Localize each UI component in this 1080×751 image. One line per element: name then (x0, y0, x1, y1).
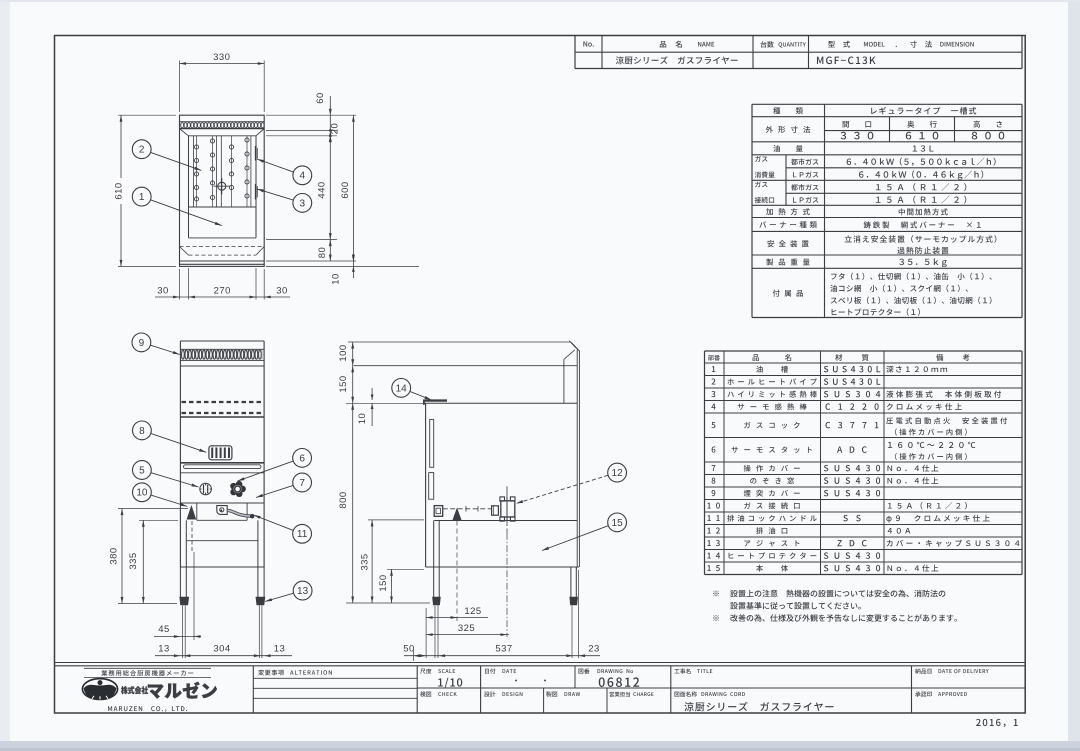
svg-text:335: 335 (128, 552, 139, 569)
svg-text:60: 60 (315, 92, 326, 104)
svg-text:325: 325 (458, 623, 475, 634)
svg-text:380: 380 (108, 547, 119, 564)
svg-text:600: 600 (340, 181, 351, 198)
svg-text:6: 6 (299, 453, 305, 464)
svg-text:50: 50 (403, 644, 415, 655)
svg-text:10: 10 (136, 488, 148, 499)
svg-text:10: 10 (331, 273, 342, 285)
svg-text:1: 1 (139, 192, 145, 203)
svg-text:12: 12 (612, 468, 624, 479)
svg-text:15: 15 (612, 518, 624, 529)
svg-text:537: 537 (495, 644, 512, 655)
svg-text:100: 100 (338, 344, 349, 361)
svg-text:13: 13 (274, 644, 286, 655)
svg-text:10: 10 (357, 413, 368, 425)
svg-text:30: 30 (157, 286, 169, 297)
svg-text:330: 330 (213, 52, 230, 63)
svg-text:335: 335 (360, 553, 371, 570)
svg-text:9: 9 (139, 338, 145, 349)
svg-text:125: 125 (464, 606, 481, 617)
svg-text:4: 4 (300, 171, 306, 182)
svg-text:13: 13 (158, 644, 170, 655)
svg-text:610: 610 (113, 182, 124, 199)
svg-text:11: 11 (297, 529, 308, 540)
svg-text:80: 80 (317, 247, 328, 259)
svg-text:8: 8 (139, 426, 145, 437)
svg-text:14: 14 (396, 383, 408, 394)
svg-text:45: 45 (158, 624, 170, 635)
svg-text:3: 3 (300, 198, 306, 209)
svg-text:270: 270 (214, 286, 231, 297)
svg-text:5: 5 (139, 465, 145, 476)
svg-text:13: 13 (297, 586, 309, 597)
svg-text:7: 7 (299, 478, 305, 489)
svg-text:150: 150 (378, 574, 389, 591)
svg-text:304: 304 (213, 644, 230, 655)
svg-text:23: 23 (588, 644, 600, 655)
svg-text:30: 30 (276, 286, 288, 297)
svg-text:2: 2 (139, 145, 145, 156)
svg-text:440: 440 (316, 181, 327, 198)
svg-text:20: 20 (330, 123, 341, 135)
svg-text:150: 150 (338, 375, 349, 392)
svg-text:800: 800 (338, 491, 349, 508)
